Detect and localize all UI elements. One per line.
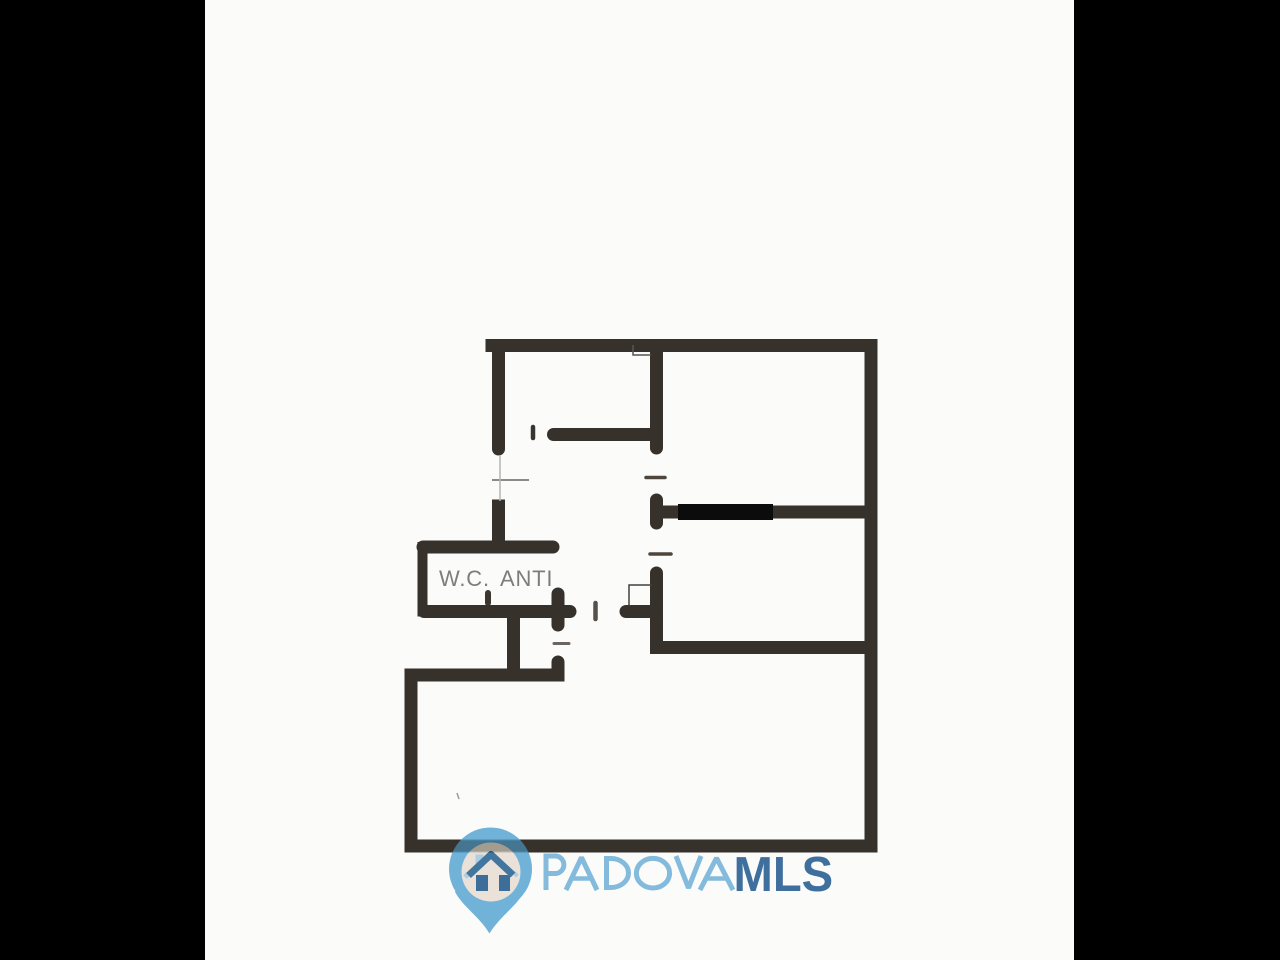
svg-text:MLS: MLS xyxy=(734,847,834,902)
svg-text:ANTI: ANTI xyxy=(500,566,553,591)
svg-text:W.C.: W.C. xyxy=(439,566,490,591)
